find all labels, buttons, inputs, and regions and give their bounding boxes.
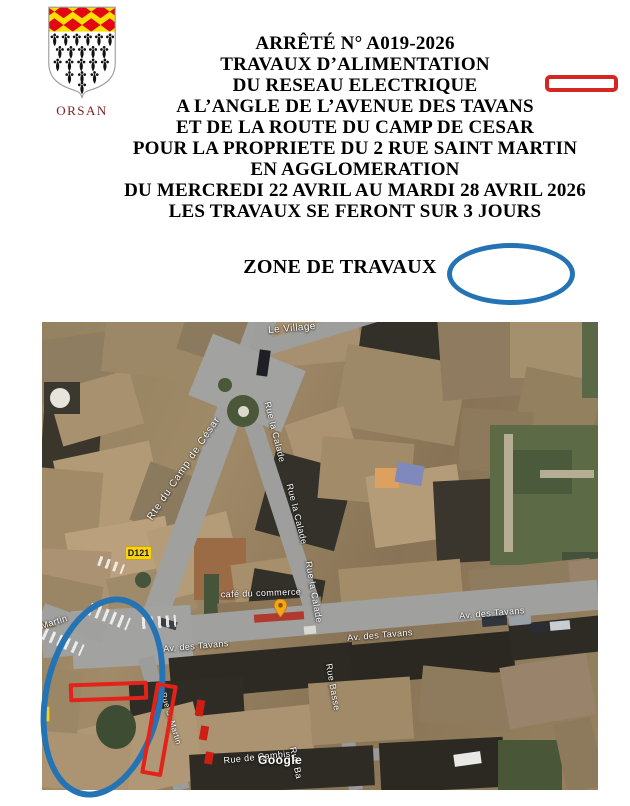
blue-ellipse-annotation xyxy=(447,243,575,305)
poi-pin-icon xyxy=(274,599,287,617)
title-line: DU MERCREDI 22 AVRIL AU MARDI 28 AVRIL 2… xyxy=(90,180,620,201)
title-line: TRAVAUX D’ALIMENTATION xyxy=(90,54,620,75)
map-shape xyxy=(135,572,151,588)
google-watermark: Google xyxy=(258,753,302,767)
title-line: A L’ANGLE DE L’AVENUE DES TAVANS xyxy=(90,96,620,117)
map-shape xyxy=(218,378,232,392)
decree-title: ARRÊTÉ N° A019-2026 TRAVAUX D’ALIMENTATI… xyxy=(90,33,620,222)
decree-page: ORSAN ARRÊTÉ N° A019-2026 TRAVAUX D’ALIM… xyxy=(0,0,630,806)
title-line: DU RESEAU ELECTRIQUE xyxy=(90,75,620,96)
title-line: ET DE LA ROUTE DU CAMP DE CESAR xyxy=(90,117,620,138)
title-line: POUR LA PROPRIETE DU 2 RUE SAINT MARTIN xyxy=(90,138,620,159)
title-line: LES TRAVAUX SE FERONT SUR 3 JOURS xyxy=(90,201,620,222)
work-zone-redbox-horizontal xyxy=(69,681,149,703)
map-shape xyxy=(530,622,549,633)
red-highlight-box xyxy=(545,75,618,92)
map-shape xyxy=(238,406,249,417)
road-badge-d121: D121 xyxy=(125,546,152,560)
map-shape xyxy=(308,677,414,746)
map-shape xyxy=(509,615,532,626)
map-shape xyxy=(504,434,513,552)
map-shape xyxy=(550,620,571,631)
map-shape xyxy=(498,740,562,790)
map-shape xyxy=(50,388,70,408)
title-line: EN AGGLOMERATION xyxy=(90,159,620,180)
map-shape xyxy=(582,322,598,398)
title-line: ARRÊTÉ N° A019-2026 xyxy=(90,33,620,54)
map-shape xyxy=(540,470,594,478)
map-shape xyxy=(379,737,505,790)
